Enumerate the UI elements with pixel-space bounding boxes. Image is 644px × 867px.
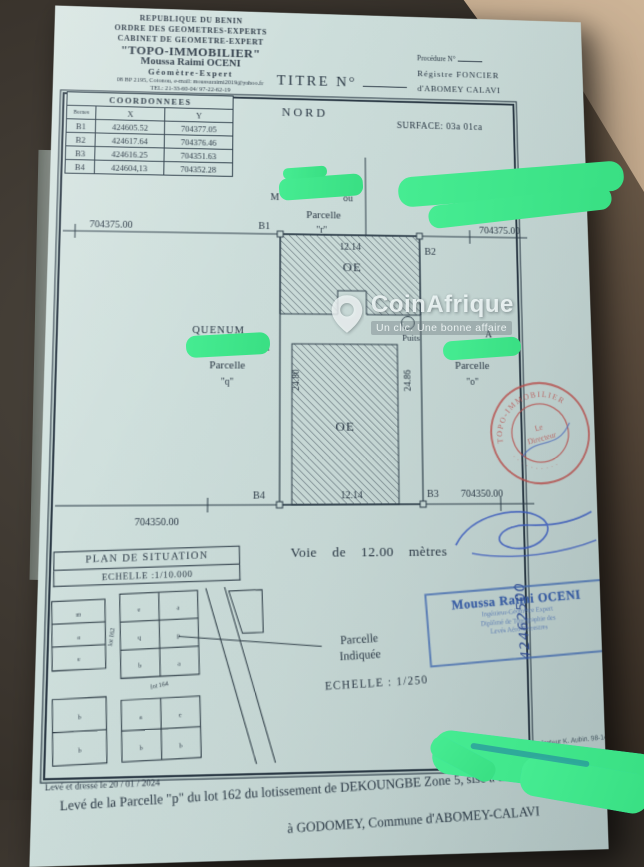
svg-text:q: q: [138, 635, 141, 642]
svg-text:b: b: [138, 663, 141, 670]
watermark: CoinAfrique Un clic. Une bonne affaire: [330, 292, 514, 336]
zone-label-top: OE: [343, 260, 362, 274]
corner-b4: B4: [253, 490, 265, 502]
dim-right: 24.86: [403, 370, 413, 392]
title-blank-line: [363, 75, 407, 88]
location-pin-icon: [330, 292, 364, 336]
lot-label: lot 164: [150, 681, 169, 691]
surface-label: SURFACE: 03a 01ca: [397, 121, 483, 132]
dim-top: 12.14: [340, 243, 361, 253]
situation-title-box: PLAN DE SITUATION ECHELLE :1/10.000: [53, 545, 240, 587]
dim-bottom: 12.14: [341, 491, 363, 502]
registry-place: d'ABOMEY CALAVI: [417, 84, 540, 97]
signature: [443, 499, 603, 564]
stamp-center-1: Le: [533, 422, 544, 433]
document-title: TITRE N°: [277, 72, 408, 92]
registry-label: Régistre FONCIER: [417, 69, 540, 82]
footer-description-line2: à GODOMEY, Commune d'ABOMEY-CALAVI: [287, 803, 540, 837]
northing-bottom-left: 704350.00: [134, 517, 179, 529]
indicated-parcel-label: Parcelle Indiquée: [312, 629, 408, 668]
watermark-tagline: Un clic. Une bonne affaire: [371, 321, 512, 335]
coords-header-bornes: Bornes: [66, 105, 96, 119]
zone-label-bottom: OE: [336, 419, 355, 433]
neighbor-right-id: "o": [466, 378, 479, 388]
procedure-number: Procédure N°: [417, 52, 540, 66]
dim-left: 24.80: [292, 369, 302, 391]
svg-text:m: m: [76, 612, 81, 619]
corner-b1: B1: [258, 221, 270, 232]
corner-b3: B3: [427, 489, 439, 500]
svg-text:e: e: [138, 607, 141, 614]
svg-text:b: b: [78, 715, 81, 722]
northing-top-right: 704375.00: [479, 226, 520, 237]
watermark-brand: CoinAfrique: [371, 292, 514, 318]
svg-text:a: a: [139, 714, 142, 721]
blue-stamp: Moussa Raimi OCENI Ingénieur-Géomètre Ex…: [424, 579, 608, 668]
lot-label: lot 162: [108, 628, 117, 647]
corner-b2: B2: [424, 247, 436, 258]
photo-of-survey-document: { "watermark": { "brand": "CoinAfrique",…: [0, 0, 644, 800]
survey-document-paper: REPUBLIQUE DU BENIN ORDRE DES GEOMETRES-…: [29, 5, 608, 867]
svg-text:p: p: [177, 633, 180, 640]
neighbor-right-line: Parcelle: [455, 360, 490, 372]
green-redaction: [185, 332, 270, 358]
neighbor-left-line: Parcelle: [209, 359, 245, 371]
registry-block: Procédure N° Régistre FONCIER d'ABOMEY C…: [417, 52, 540, 96]
svg-text:a: a: [77, 635, 80, 642]
neighbor-left-id: "q": [221, 377, 234, 387]
svg-text:b: b: [140, 745, 143, 752]
svg-text:b: b: [78, 748, 81, 755]
neighbor-tl-pre: M: [270, 192, 279, 203]
svg-text:b: b: [179, 743, 182, 750]
svg-text:e: e: [179, 712, 182, 719]
neighbor-tl-id: "r": [316, 226, 327, 236]
svg-text:a: a: [178, 661, 181, 668]
svg-text:a: a: [176, 605, 179, 612]
neighbor-tl-line: Parcelle: [306, 209, 341, 221]
title-label: TITRE N°: [277, 73, 357, 90]
northing-top-left: 704375.00: [89, 219, 132, 231]
svg-text:e: e: [77, 656, 80, 663]
northing-bottom-right: 704350.00: [461, 488, 503, 500]
